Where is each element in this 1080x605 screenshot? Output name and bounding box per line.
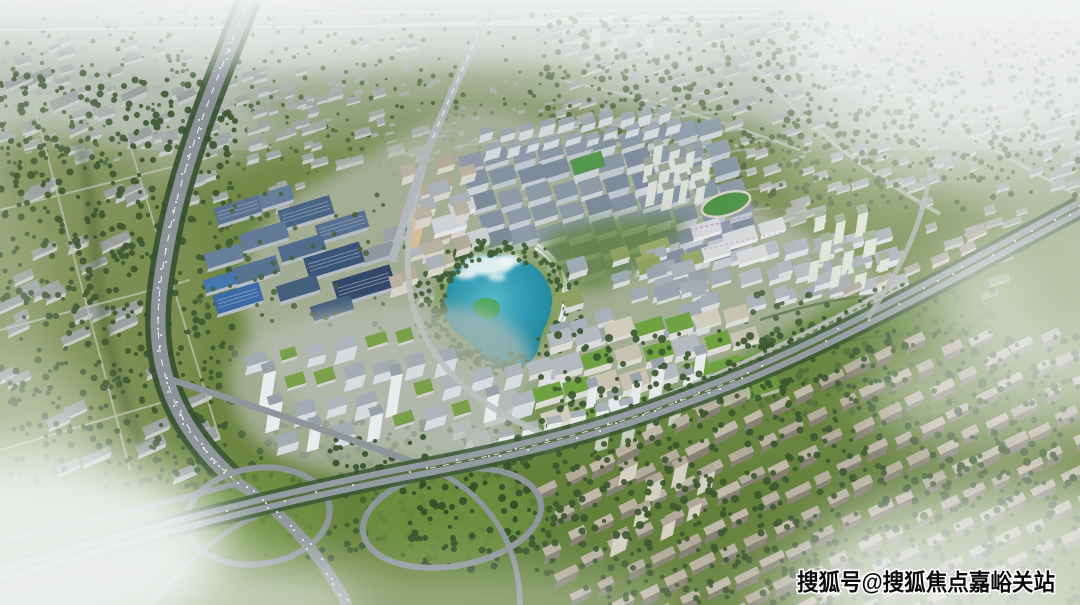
svg-text:搜狐号@搜狐焦点嘉峪关站: 搜狐号@搜狐焦点嘉峪关站 [797,569,1055,595]
